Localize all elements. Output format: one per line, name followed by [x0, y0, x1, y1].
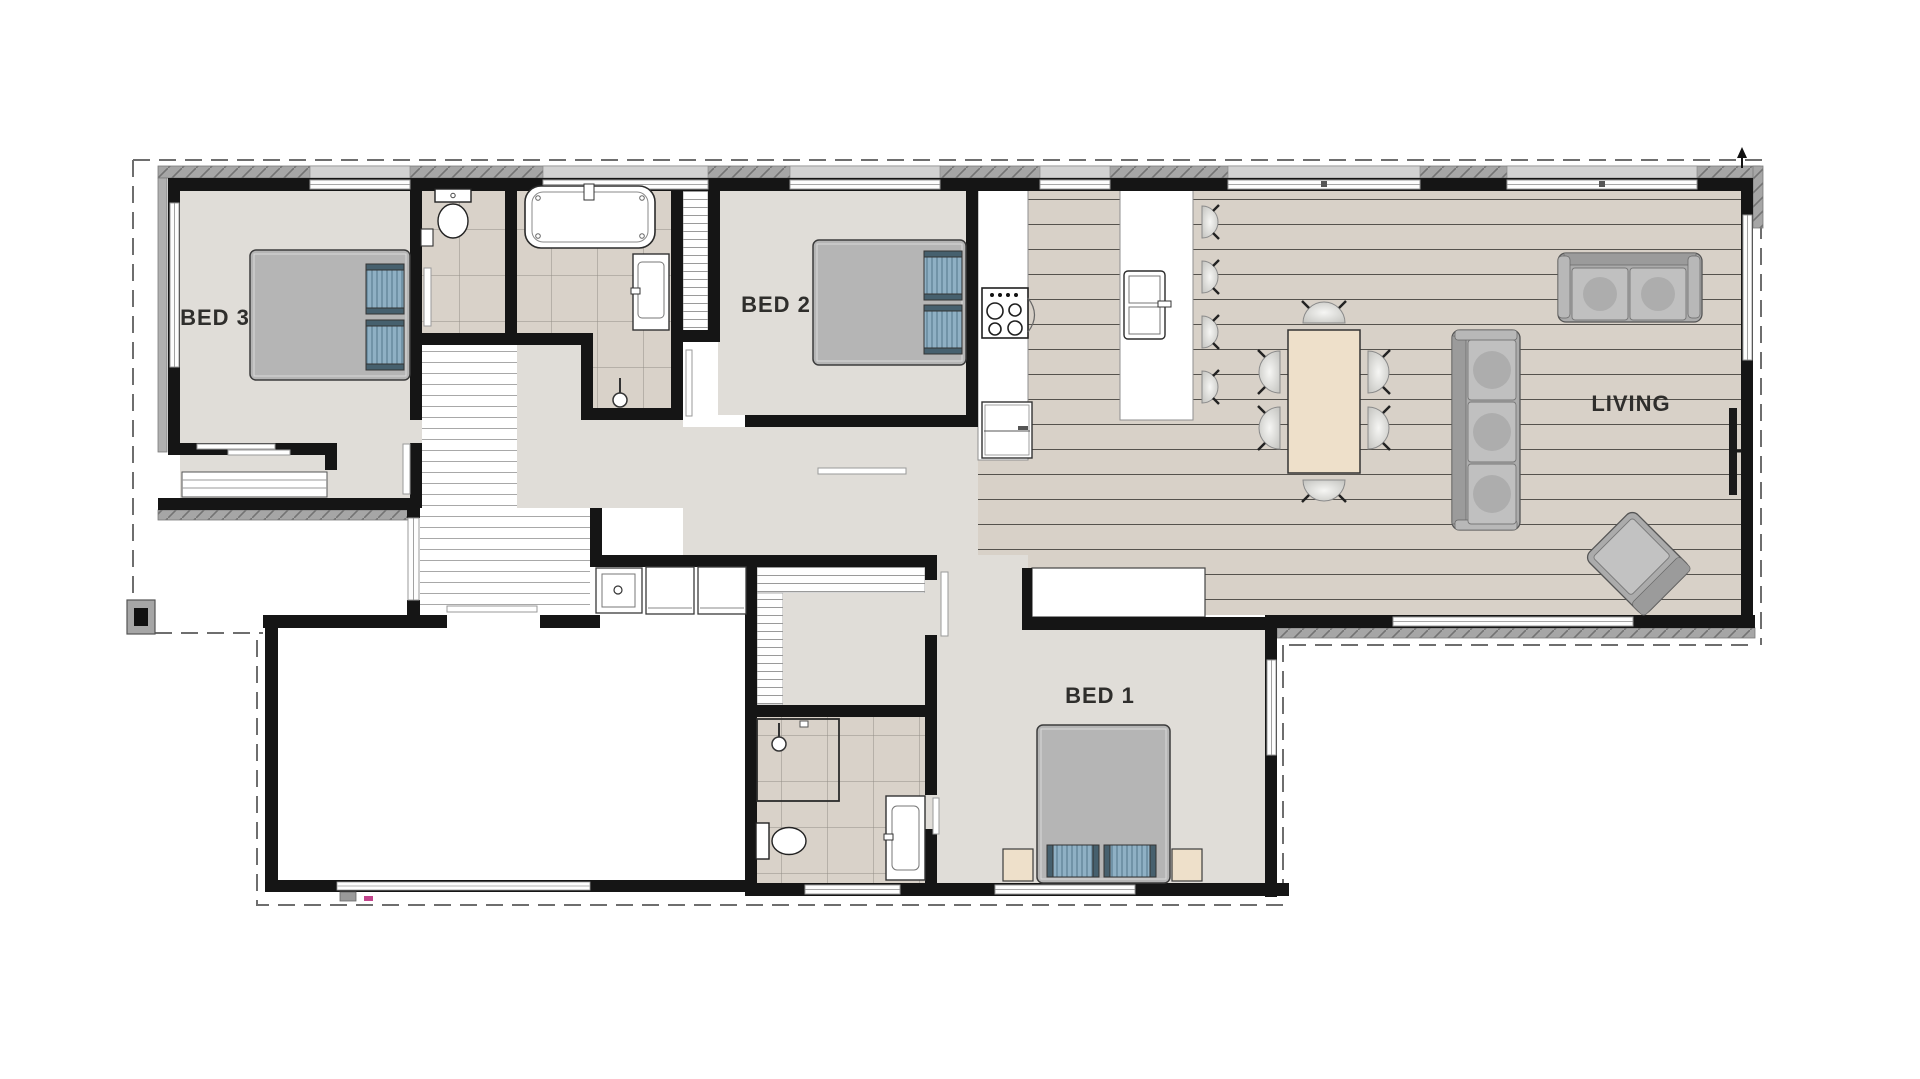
door-leaf-bed2 [686, 350, 692, 416]
sofa-2-seat [1558, 253, 1702, 322]
island-sink [1124, 271, 1171, 339]
bed3-wardrobe [182, 472, 327, 497]
floor-linen-shelves [683, 190, 708, 340]
door-gap-bed3 [410, 420, 422, 443]
ensuite-toilet-cistern [756, 823, 769, 859]
porch-post [127, 600, 155, 634]
bathtub-faucet [584, 184, 594, 200]
wc-hand-basin [421, 229, 433, 246]
floor-hall-gray-4 [937, 555, 1028, 617]
sofa-3-seat [1452, 330, 1520, 530]
window-mullion-tick-2 [1599, 181, 1605, 187]
door-leaf-front [447, 606, 537, 612]
window-mullion-tick-1 [1321, 181, 1327, 187]
room-label-bed1: BED 1 [1065, 683, 1135, 708]
robe-slider-1 [197, 444, 275, 449]
alcove-store [1032, 568, 1205, 617]
room-label-bed3: BED 3 [180, 305, 250, 330]
floor-hall-gray-1 [517, 345, 581, 508]
wir-floor [783, 593, 925, 705]
eave-bed3-bottom [158, 510, 408, 520]
eave-left [158, 178, 167, 452]
downpipe [340, 892, 356, 901]
floor-shower-tile [593, 333, 671, 408]
door-leaf-ensuite [933, 798, 939, 834]
bed2-group [813, 240, 966, 365]
door-leaf-hall [818, 468, 906, 474]
floor-hall-planks-a [422, 345, 517, 508]
laundry-group [596, 567, 746, 614]
ensuite-vanity-faucet [884, 834, 893, 840]
room-label-bed2: BED 2 [741, 292, 811, 317]
eave-right [1753, 166, 1763, 228]
room-label-living: LIVING [1591, 391, 1670, 416]
floor-hall-gray-2 [581, 420, 683, 508]
cooktop [982, 288, 1035, 338]
bathroom-vanity-faucet [631, 288, 640, 294]
dryer [698, 567, 746, 614]
door-leaf-wc [424, 268, 431, 326]
floor-plan-page: BED 3 BED 2 BED 1 LIVING [0, 0, 1920, 1079]
floor-plan-drawing: BED 3 BED 2 BED 1 LIVING [0, 0, 1920, 1079]
fridge [982, 402, 1032, 458]
robe-slider-2 [228, 450, 290, 455]
washing-machine [646, 567, 694, 614]
hose-tap [364, 896, 373, 901]
door-gap-front [447, 615, 540, 628]
floor-hall-gray-3 [683, 427, 978, 555]
north-arrow [1737, 147, 1747, 168]
floor-entry-planks [420, 508, 590, 615]
wir-shelf-top [757, 567, 925, 593]
eave-living-bottom [1277, 628, 1755, 638]
door-leaf-wir [941, 572, 948, 636]
dining-table [1288, 330, 1360, 473]
wc-toilet-bowl [438, 204, 468, 238]
door-gap-wir [925, 580, 937, 635]
wir-shelf-left [757, 593, 783, 705]
door-leaf-bed3 [403, 444, 410, 494]
ensuite-toilet-bowl [772, 828, 806, 855]
bed1-side-table-left [1003, 849, 1033, 881]
bed1-side-table-right [1172, 849, 1202, 881]
